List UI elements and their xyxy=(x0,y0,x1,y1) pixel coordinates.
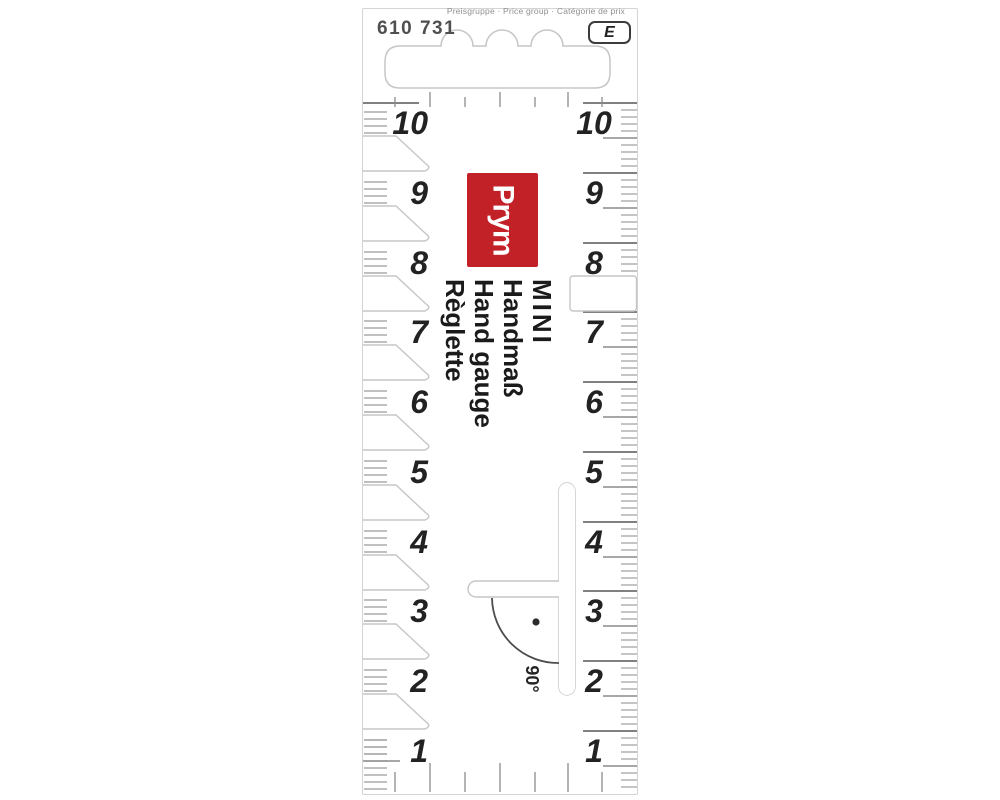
prym-logo: Prym xyxy=(467,173,538,267)
right-scale-number: 10 xyxy=(575,105,613,141)
left-scale-number: 3 xyxy=(384,593,428,629)
left-scale-number: 4 xyxy=(384,524,428,560)
title-line: Règlette xyxy=(440,279,469,455)
right-scale-number: 7 xyxy=(575,314,613,350)
title-line: Hand gauge xyxy=(469,279,498,455)
price-group-code: E xyxy=(604,24,615,42)
title-line: Handmaß xyxy=(498,279,527,455)
right-scale-number: 8 xyxy=(575,245,613,281)
center-dot xyxy=(532,618,539,625)
left-scale-number: 2 xyxy=(384,663,428,699)
right-scale-number: 1 xyxy=(575,733,613,769)
right-scale-number: 3 xyxy=(575,593,613,629)
angle-label: 90° xyxy=(519,658,545,700)
product-title-block: MINI Handmaß Hand gauge Règlette xyxy=(440,279,556,455)
left-scale-number: 8 xyxy=(384,245,428,281)
left-scale-number: 9 xyxy=(384,175,428,211)
left-edge-notches xyxy=(363,136,429,729)
article-number: 610 731 xyxy=(377,18,456,40)
left-scale-number: 7 xyxy=(384,314,428,350)
right-rect-notch xyxy=(570,276,637,311)
right-scale-number: 6 xyxy=(575,384,613,420)
right-scale-number: 9 xyxy=(575,175,613,211)
title-line: MINI xyxy=(527,279,556,455)
left-scale-number: 10 xyxy=(384,105,428,141)
left-scale-number: 6 xyxy=(384,384,428,420)
right-scale-number: 2 xyxy=(575,663,613,699)
left-scale-number: 1 xyxy=(384,733,428,769)
right-scale-number: 4 xyxy=(575,524,613,560)
right-scale-number: 5 xyxy=(575,454,613,490)
prym-logo-text: Prym xyxy=(486,184,520,255)
price-group-label: Preisgruppe · Price group · Catégorie de… xyxy=(440,6,625,16)
left-scale-number: 5 xyxy=(384,454,428,490)
price-group-badge: E xyxy=(588,21,631,44)
product-photo: Preisgruppe · Price group · Catégorie de… xyxy=(0,0,1000,800)
angle-arc xyxy=(492,598,559,663)
